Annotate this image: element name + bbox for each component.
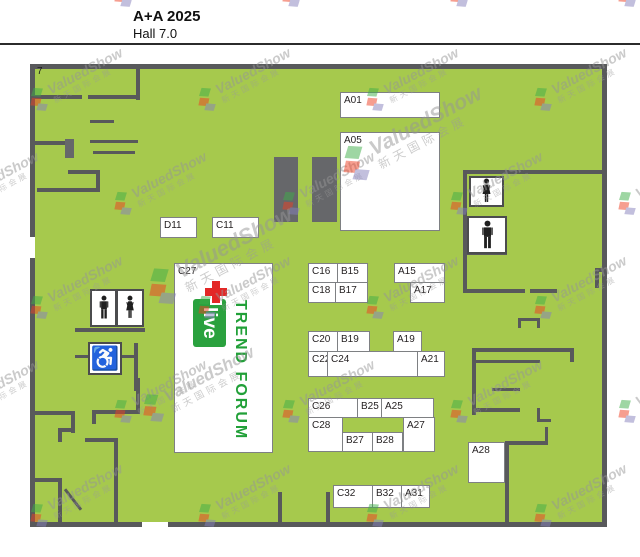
booth-a05[interactable]: A05: [340, 132, 440, 231]
restroom-women-right: [469, 176, 504, 207]
man-icon: [97, 294, 111, 322]
booth-b15[interactable]: B15: [337, 263, 368, 283]
watermark: ValuedShow新天国际会展: [444, 0, 550, 12]
column-pillar: [65, 139, 74, 158]
watermark-chinese: 新天国际会展: [473, 0, 550, 1]
booth-a19[interactable]: A19: [393, 331, 422, 352]
wall-segment: [37, 188, 100, 192]
wall-segment: [35, 478, 60, 482]
live-logo: live: [193, 299, 226, 347]
wall-segment: [35, 411, 75, 415]
header-divider: [0, 43, 640, 45]
wall-segment: [463, 289, 525, 293]
wall-segment: [537, 318, 540, 328]
valuedshow-logo-icon: [612, 0, 640, 12]
booth-a17[interactable]: A17: [410, 282, 445, 303]
booth-c24[interactable]: C24: [327, 351, 418, 377]
wall-segment: [472, 348, 476, 415]
wall-segment: [58, 478, 62, 527]
watermark-chinese: 新天国际会展: [305, 0, 382, 1]
wall-segment: [90, 120, 114, 123]
wheelchair-icon: ♿: [91, 347, 120, 370]
wall-segment: [537, 419, 551, 422]
wall-segment: [472, 408, 520, 412]
watermark: ValuedShow新天国际会展: [612, 147, 640, 220]
wall-segment: [545, 427, 548, 441]
restroom-accessible: ♿: [88, 342, 122, 375]
wall-segment: [518, 318, 521, 328]
valuedshow-logo-icon: [612, 188, 640, 220]
booth-c11[interactable]: C11: [212, 217, 259, 238]
valuedshow-logo-icon: [612, 396, 640, 428]
valuedshow-logo-icon: [276, 0, 306, 12]
wall-segment: [326, 492, 330, 523]
trend-forum-label: TREND FORUM: [231, 300, 249, 440]
wall-segment: [114, 438, 118, 527]
column-pillar: [312, 157, 337, 222]
wall-segment: [90, 140, 138, 143]
wall-segment: [32, 95, 82, 99]
booth-b27[interactable]: B27: [342, 432, 373, 452]
watermark-chinese: 新天国际会展: [137, 0, 214, 1]
wall-segment: [75, 328, 145, 332]
restroom-men-left: [90, 289, 117, 327]
red-cross-icon: [203, 279, 229, 305]
wall-segment: [570, 348, 574, 362]
wall-segment: [75, 355, 89, 358]
woman-icon: [479, 178, 494, 205]
wall-segment: [278, 492, 282, 523]
booth-c20[interactable]: C20: [308, 331, 338, 352]
booth-b28[interactable]: B28: [372, 432, 403, 452]
booth-c16[interactable]: C16: [308, 263, 338, 283]
booth-a31[interactable]: A31: [401, 485, 430, 508]
booth-a28[interactable]: A28: [468, 442, 505, 483]
wall-segment: [472, 360, 540, 363]
booth-b19[interactable]: B19: [337, 331, 370, 352]
hall-corner-number: 7: [37, 66, 43, 77]
wall-segment: [530, 289, 557, 293]
booth-c22[interactable]: C22: [308, 351, 328, 377]
booth-a25[interactable]: A25: [381, 398, 434, 418]
column-pillar: [274, 157, 298, 222]
wall-segment: [136, 378, 140, 414]
wall-segment: [88, 95, 138, 99]
booth-b32[interactable]: B32: [372, 485, 402, 508]
man-icon: [479, 220, 496, 251]
watermark: ValuedShow新天国际会展: [612, 355, 640, 428]
watermark-brand: ValuedShow: [633, 357, 640, 408]
booth-a01[interactable]: A01: [340, 92, 440, 118]
watermark: ValuedShow新天国际会展: [612, 0, 640, 12]
wall-segment: [92, 410, 140, 414]
restroom-women-left: [116, 289, 144, 327]
valuedshow-logo-icon: [444, 0, 474, 12]
wall-segment: [472, 348, 573, 352]
door-opening: [142, 522, 168, 527]
hall-label: Hall 7.0: [133, 26, 177, 41]
door-opening: [30, 237, 35, 258]
wall-segment: [505, 441, 548, 445]
watermark: ValuedShow新天国际会展: [0, 0, 45, 12]
booth-a15[interactable]: A15: [394, 263, 445, 283]
booth-c18[interactable]: C18: [308, 282, 336, 303]
booth-d11[interactable]: D11: [160, 217, 197, 238]
woman-icon: [123, 294, 137, 322]
watermark-brand: ValuedShow: [633, 149, 640, 200]
watermark-chinese: 新天国际会展: [0, 0, 45, 1]
booth-c28[interactable]: C28: [308, 417, 343, 452]
booth-b25[interactable]: B25: [357, 398, 382, 418]
wall-segment: [492, 388, 520, 391]
booth-a27[interactable]: A27: [403, 417, 435, 452]
wall-segment: [463, 170, 602, 174]
booth-b17[interactable]: B17: [335, 282, 368, 303]
watermark: ValuedShow新天国际会展: [276, 0, 382, 12]
wall-segment: [58, 428, 62, 442]
wall-segment: [93, 151, 135, 154]
wall-segment: [505, 441, 509, 527]
booth-c26[interactable]: C26: [308, 398, 358, 418]
booth-c32[interactable]: C32: [333, 485, 373, 508]
restroom-men-right: [467, 216, 507, 254]
wall-segment: [595, 268, 599, 288]
booth-a21[interactable]: A21: [417, 351, 445, 377]
wall-segment: [136, 64, 140, 100]
wall-segment: [92, 410, 96, 424]
page-title: A+A 2025: [133, 8, 200, 25]
